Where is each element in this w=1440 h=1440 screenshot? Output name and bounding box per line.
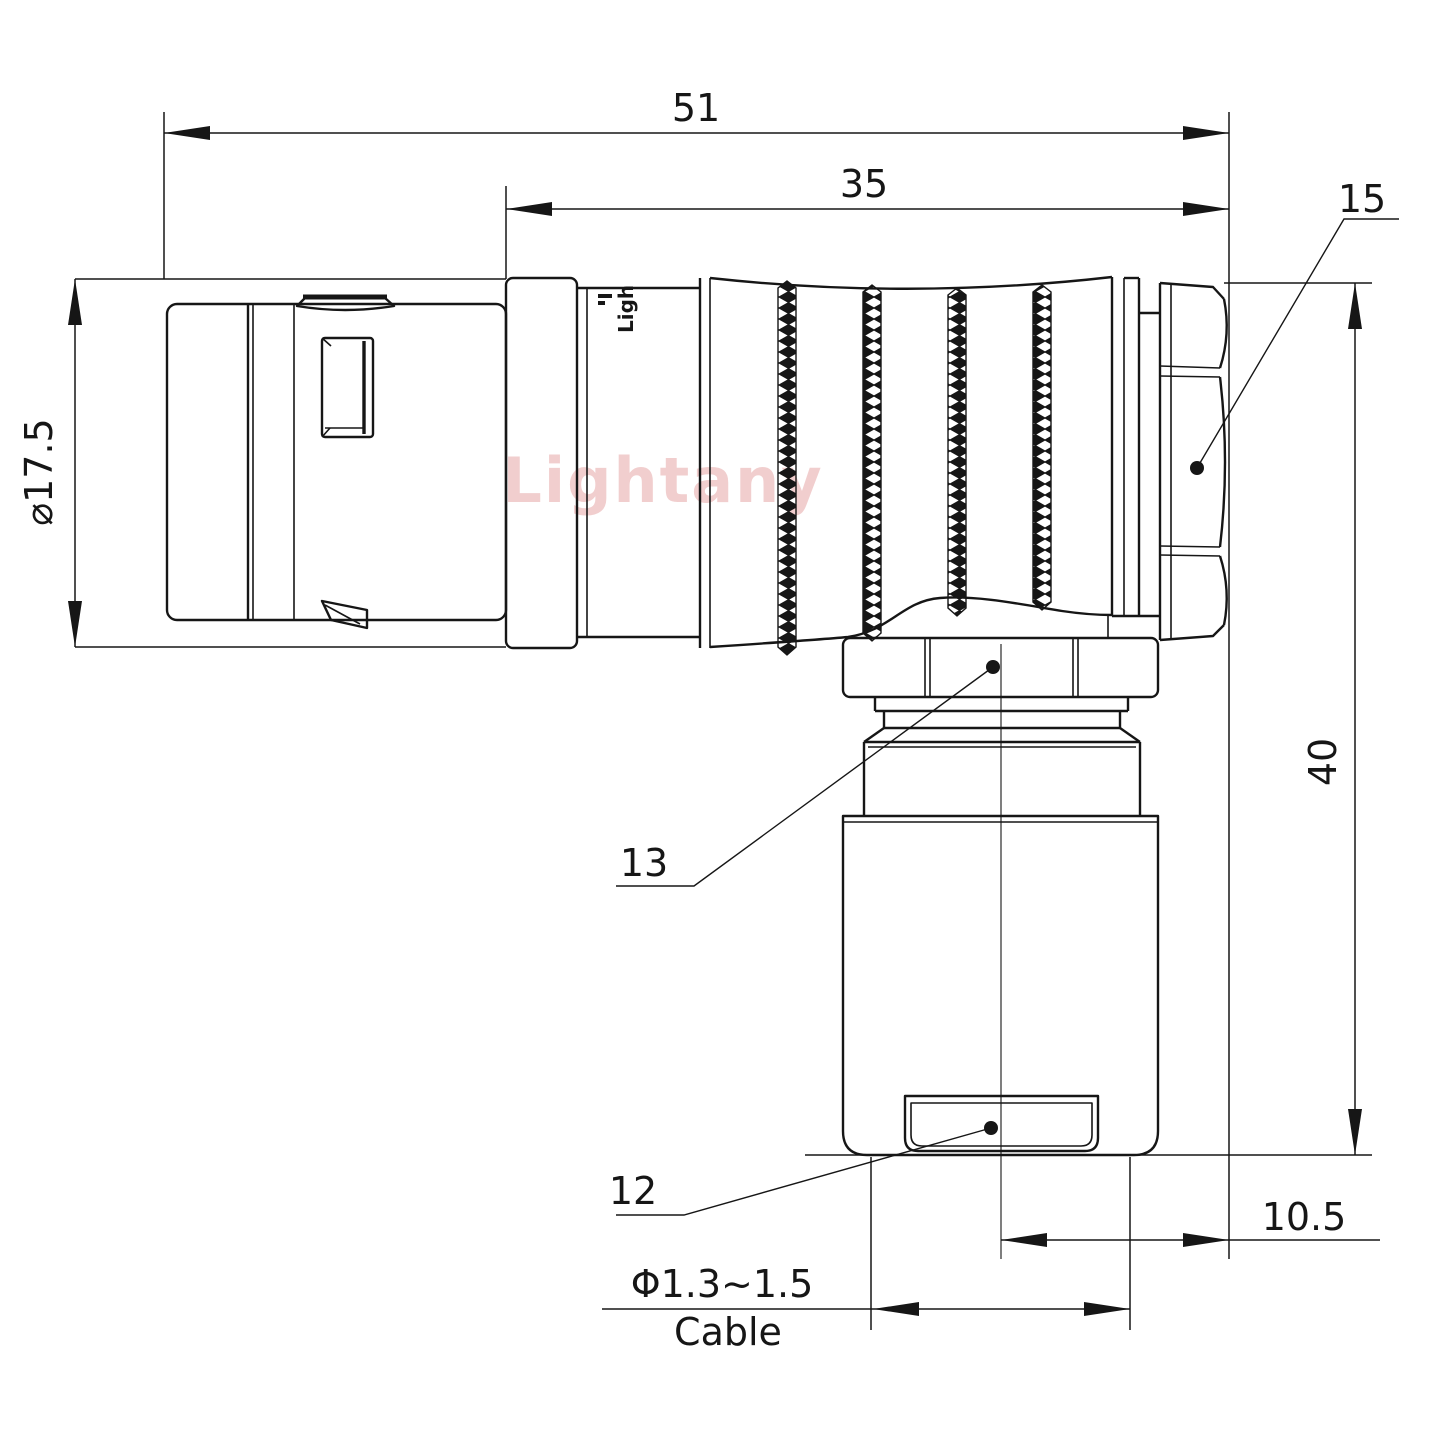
- dim-35-text: 35: [840, 162, 888, 206]
- dimension-51: 51: [164, 86, 1229, 1259]
- dimension-35: 35: [506, 162, 1229, 279]
- label-12: 12: [609, 1121, 998, 1215]
- connector-technical-drawing: Lightany: [0, 0, 1440, 1440]
- connector-side-view: Ligh: [167, 277, 1227, 1259]
- dimensions: 51 35 ⌀17.5 40: [17, 86, 1399, 1354]
- dim-cable-diameter-text: Φ1.3~1.5: [631, 1262, 814, 1306]
- gland-neck: [864, 697, 1140, 816]
- knurl-band: [1033, 285, 1051, 610]
- dim-40-text: 40: [1301, 738, 1345, 786]
- label-13: 13: [616, 660, 1000, 886]
- dimension-17-5: ⌀17.5: [17, 279, 506, 647]
- knurl-band: [778, 281, 796, 655]
- label-12-text: 12: [609, 1169, 657, 1213]
- dimension-40: 40: [805, 283, 1372, 1155]
- latch-window: [322, 338, 373, 437]
- rear-rings: [1108, 278, 1160, 638]
- bayonet-tab: [322, 601, 367, 628]
- label-15: 15: [1190, 177, 1399, 475]
- hex-nut-15: [1160, 283, 1227, 640]
- label-15-text: 15: [1338, 177, 1386, 221]
- dimension-10-5: 10.5: [1001, 1195, 1380, 1247]
- dim-51-text: 51: [672, 86, 720, 130]
- knurl-band: [948, 288, 966, 616]
- watermark-text: Lightany: [502, 444, 823, 517]
- drawing-canvas: Lightany: [0, 0, 1440, 1440]
- dim-cable-word-text: Cable: [674, 1310, 782, 1354]
- knurl-band: [863, 285, 881, 641]
- label-13-text: 13: [620, 841, 668, 885]
- dimension-cable: Φ1.3~1.5 Cable: [602, 1157, 1130, 1354]
- dim-17-5-text: ⌀17.5: [17, 418, 61, 526]
- dim-10-5-text: 10.5: [1262, 1195, 1347, 1239]
- strain-relief-barrel: [843, 644, 1158, 1259]
- brand-engraving: Ligh: [614, 285, 638, 333]
- plug-shell: [167, 297, 506, 628]
